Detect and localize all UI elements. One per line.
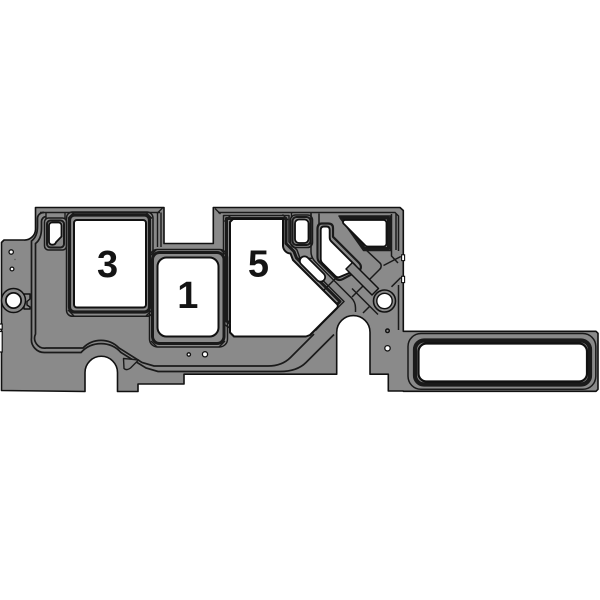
svg-text:1: 1 [177,275,198,317]
svg-text:3: 3 [97,244,118,286]
svg-text:5: 5 [248,243,269,285]
